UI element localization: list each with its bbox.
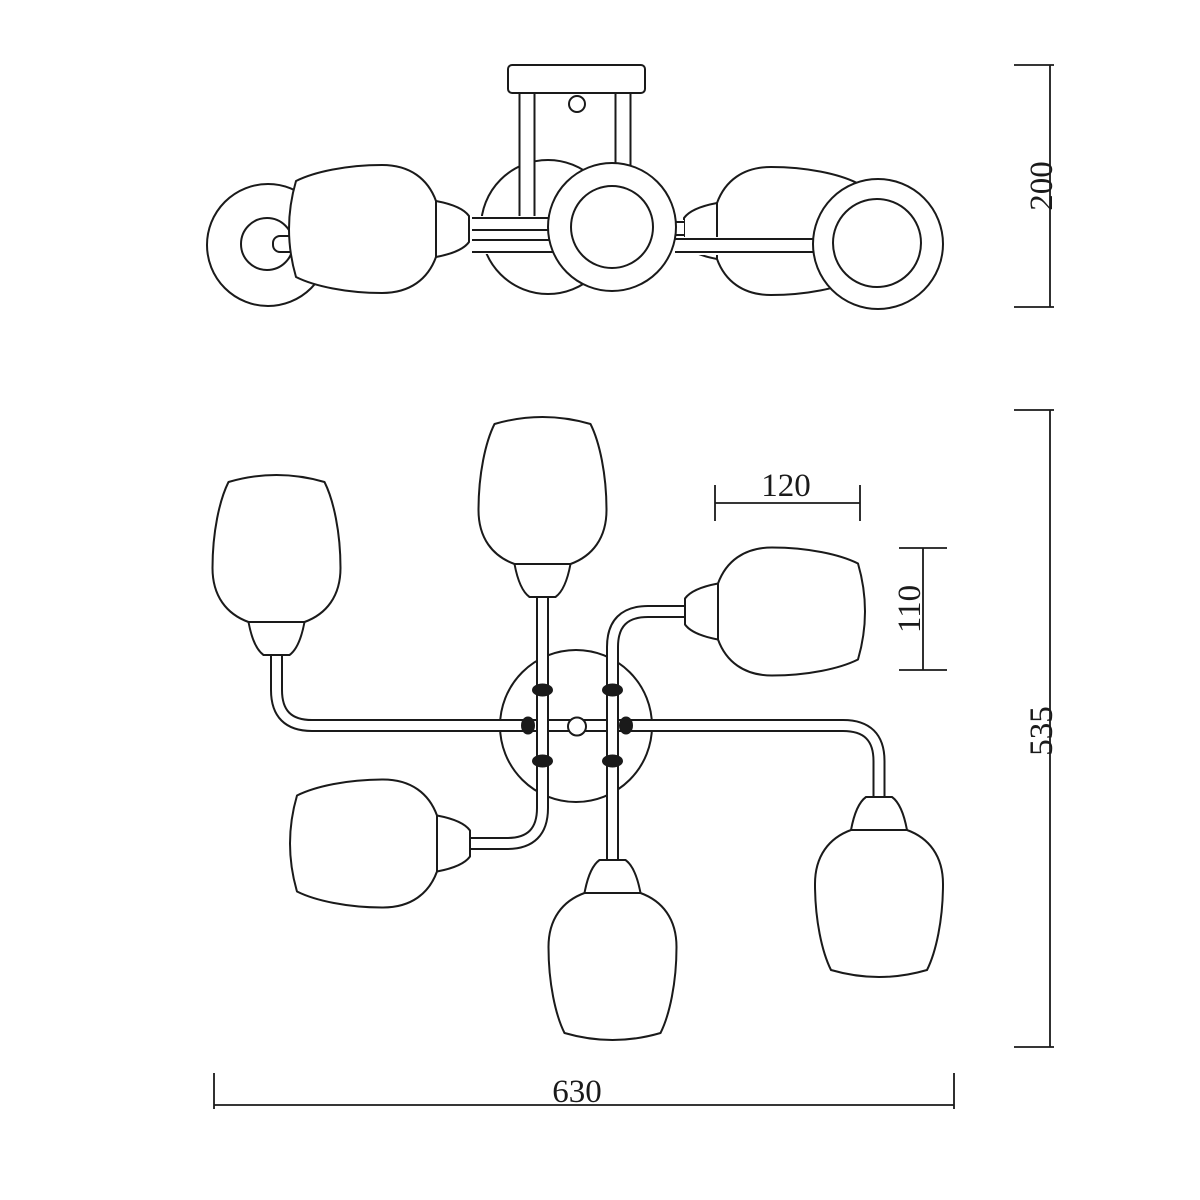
shade-top-right xyxy=(685,548,865,676)
dimension-plan-depth: 535 xyxy=(1014,410,1060,1047)
shade-side-left xyxy=(289,165,469,293)
shade-top-middle xyxy=(479,417,607,597)
dimension-fixture-height: 200 xyxy=(1014,65,1060,307)
dimension-shade-width: 120 xyxy=(715,468,860,521)
dimension-plan-width: 630 xyxy=(214,1073,954,1110)
dimension-label-shade-width: 120 xyxy=(761,468,811,504)
shade-bottom-left xyxy=(290,780,470,908)
side-elevation-view xyxy=(207,65,943,309)
shade-bottom-right xyxy=(815,797,943,977)
shade-ring-right xyxy=(813,179,943,309)
stem-left xyxy=(520,90,535,219)
dimension-label-plan-depth: 535 xyxy=(1024,706,1060,756)
dimension-label-height: 200 xyxy=(1024,161,1060,211)
dimension-shade-depth: 110 xyxy=(892,548,947,670)
dimension-label-plan-width: 630 xyxy=(552,1074,602,1110)
ceiling-plate xyxy=(508,65,645,93)
technical-drawing-canvas: 200 120 110 535 630 xyxy=(0,0,1200,1200)
dimension-label-shade-depth: 110 xyxy=(892,585,928,633)
shade-top-left xyxy=(213,475,341,655)
plan-view xyxy=(213,417,944,1040)
shade-bottom-middle xyxy=(549,860,677,1040)
shade-ring-center xyxy=(548,163,676,291)
arm-bundle-left xyxy=(472,216,553,254)
drawing-sheet: 200 120 110 535 630 xyxy=(0,0,1200,1200)
plate-screw xyxy=(569,96,585,112)
center-finial xyxy=(568,718,586,736)
stem-right xyxy=(616,90,631,170)
